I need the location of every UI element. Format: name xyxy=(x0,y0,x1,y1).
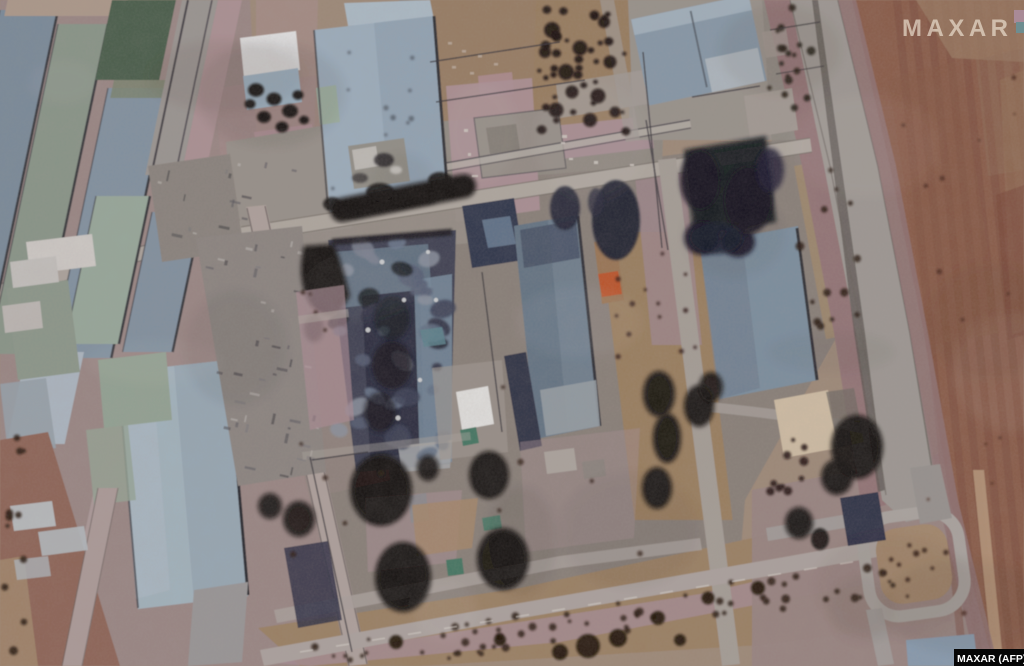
svg-text:MAXAR (AFP): MAXAR (AFP) xyxy=(957,653,1024,665)
svg-text:MAXAR: MAXAR xyxy=(902,15,1013,42)
